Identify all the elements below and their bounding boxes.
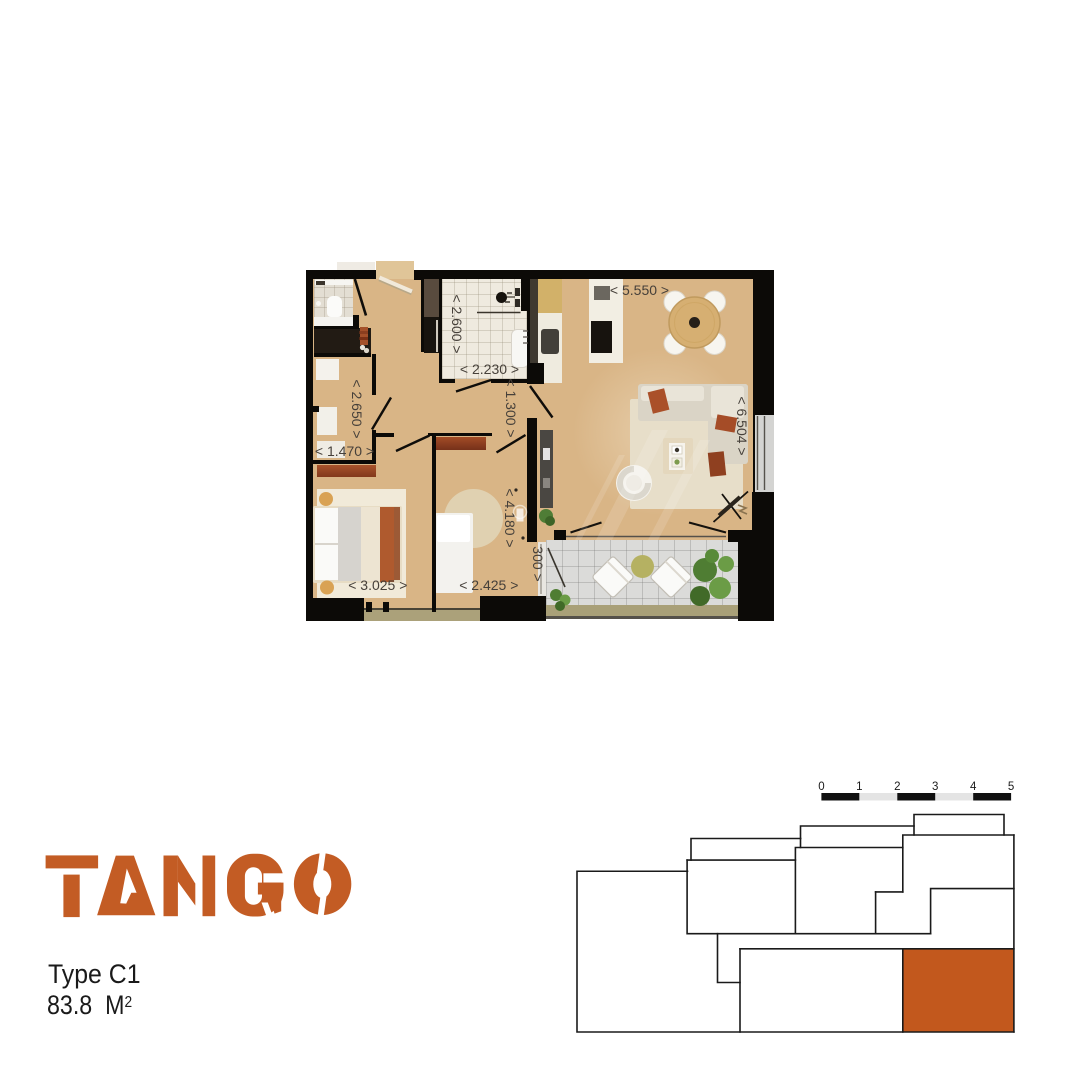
svg-text:2: 2 <box>894 781 900 793</box>
svg-text:0: 0 <box>818 781 824 793</box>
svg-text:3: 3 <box>932 781 938 793</box>
svg-text:4: 4 <box>970 781 977 793</box>
svg-text:5: 5 <box>1008 781 1014 793</box>
svg-text:1: 1 <box>856 781 862 793</box>
